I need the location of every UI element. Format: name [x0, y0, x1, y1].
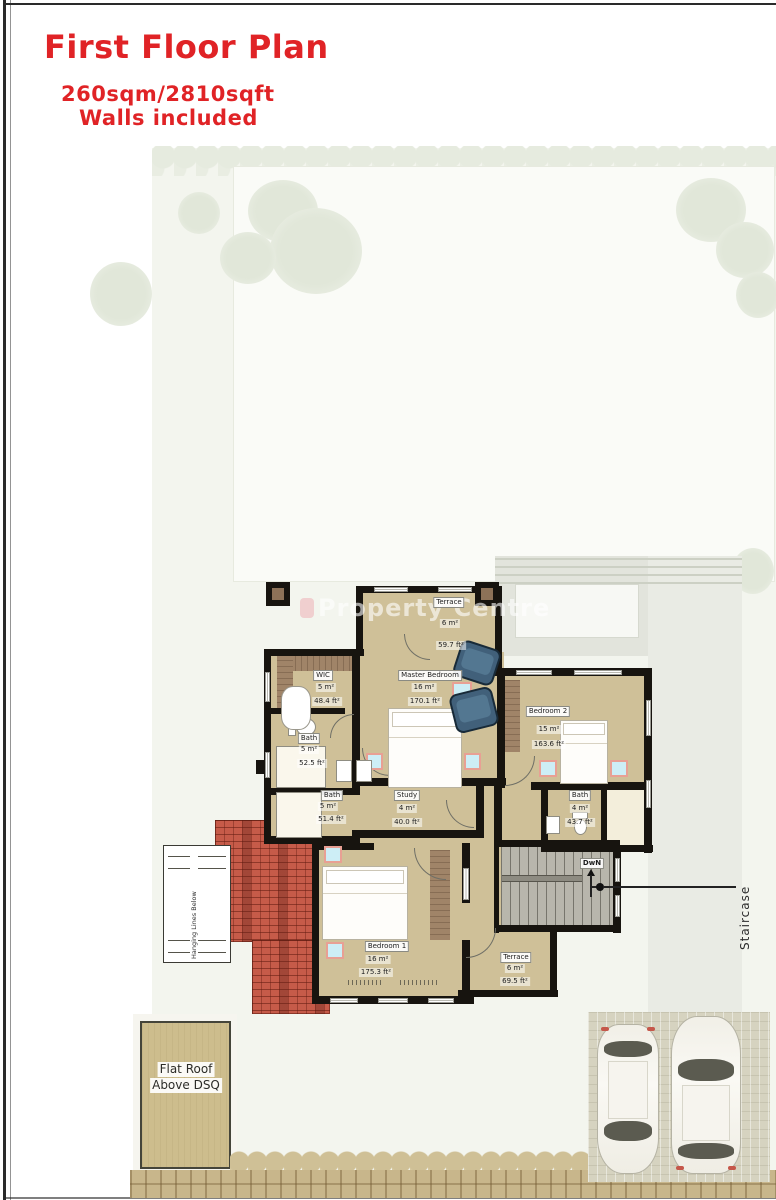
- car: [597, 1024, 659, 1174]
- bed-master: [388, 708, 462, 788]
- room-label: WIC: [313, 670, 333, 681]
- bed-bedroom2: [560, 720, 608, 784]
- sheet-border-top: [3, 3, 776, 5]
- room-area-sqm: 16 m²: [366, 955, 391, 964]
- nightstand: [326, 942, 344, 959]
- nightstand: [539, 760, 557, 777]
- bush: [220, 232, 276, 284]
- window: [330, 998, 358, 1003]
- sink: [336, 760, 352, 782]
- wall-segment: [550, 925, 557, 997]
- nightstand: [610, 760, 628, 777]
- sink: [546, 816, 560, 834]
- bed-bedroom1: [322, 866, 408, 940]
- flat-roof-dsq: [140, 1021, 231, 1169]
- room-label: Bath: [321, 790, 343, 801]
- bush: [716, 222, 774, 278]
- room-area-sqft: 69.5 ft²: [500, 977, 530, 986]
- bush: [178, 192, 220, 234]
- watermark-logo: [300, 598, 314, 618]
- sink: [356, 760, 372, 782]
- hanging-lines-label: Hanging Lines Below: [190, 850, 198, 960]
- vanity-wic: [281, 686, 311, 730]
- pier-column: [266, 582, 290, 606]
- window: [378, 998, 408, 1003]
- room-label: Terrace: [433, 597, 464, 608]
- wall-segment: [312, 843, 319, 1004]
- door-opening: [463, 868, 469, 900]
- side-path-gray: [648, 556, 742, 1034]
- room-area-sqm: 15 m²: [537, 725, 562, 734]
- room-area-sqm: 5 m²: [316, 683, 336, 692]
- room-area-sqft: 48.4 ft²: [312, 697, 342, 706]
- stair-rail: [502, 875, 582, 882]
- window: [574, 670, 622, 675]
- sheet-border-left-inner: [10, 0, 11, 1200]
- window: [646, 700, 651, 736]
- room-area-sqm: 4 m²: [570, 804, 590, 813]
- wall-segment: [494, 925, 620, 932]
- window: [615, 895, 620, 917]
- wall-segment: [601, 790, 607, 845]
- wall-segment: [312, 843, 374, 850]
- shower-shared-bath: [276, 792, 322, 838]
- window: [615, 858, 620, 882]
- room-label: Master Bedroom: [398, 670, 462, 681]
- room-area-sqm: 5 m²: [318, 802, 338, 811]
- room-area-sqft: 163.6 ft²: [532, 740, 566, 749]
- wall-segment: [497, 668, 505, 788]
- room-label: Bedroom 2: [526, 706, 570, 717]
- room-area-sqm: 6 m²: [505, 964, 525, 973]
- staircase-callout: Staircase: [738, 846, 752, 950]
- room-area-sqm: 16 m²: [412, 683, 437, 692]
- car: [671, 1016, 741, 1174]
- wall-segment: [476, 778, 484, 838]
- wall-segment: [264, 649, 364, 656]
- window: [646, 780, 651, 808]
- flat-roof-label-line1: Flat Roof: [158, 1062, 215, 1077]
- nightstand: [324, 846, 342, 863]
- wall-segment: [494, 840, 620, 847]
- path-stripes: [495, 558, 742, 584]
- wall-segment: [494, 845, 499, 933]
- room-area-sqm: 6 m²: [440, 619, 460, 628]
- sill-hatch: [348, 980, 384, 985]
- room-label: Terrace: [500, 952, 531, 963]
- wall-segment: [352, 830, 482, 838]
- bush: [90, 262, 152, 326]
- page-title: First Floor Plan: [44, 28, 329, 66]
- room-label: Bedroom 1: [365, 941, 409, 952]
- sheet-border-left: [3, 0, 6, 1200]
- floor-plan-sheet: { "page": { "title": "First Floor Plan",…: [0, 0, 776, 1200]
- wardrobe-bedroom2: [504, 680, 520, 752]
- page-subtitle-area: 260sqm/2810sqft: [61, 82, 275, 106]
- room-area-sqft: 40.0 ft²: [392, 818, 422, 827]
- nightstand: [464, 753, 481, 770]
- room-area-sqft: 51.4 ft²: [316, 815, 346, 824]
- window: [265, 752, 270, 778]
- page-note-walls: Walls included: [79, 106, 258, 130]
- window: [516, 670, 552, 675]
- room-area-sqm: 4 m²: [397, 804, 417, 813]
- window: [438, 587, 472, 592]
- room-label: Bath: [298, 733, 320, 744]
- wall-segment: [644, 668, 652, 853]
- sill-hatch: [400, 980, 438, 985]
- bush: [270, 208, 362, 294]
- room-area-sqft: 175.3 ft²: [359, 968, 393, 977]
- bush: [736, 272, 776, 318]
- room-area-sqm: 5 m²: [299, 745, 319, 754]
- window: [428, 998, 454, 1003]
- stair-direction-label: DwN: [580, 858, 604, 869]
- room-label: Bath: [569, 790, 591, 801]
- floor-closet-room: [604, 790, 644, 847]
- room-area-sqft: 52.5 ft²: [297, 759, 327, 768]
- window: [374, 587, 408, 592]
- window: [265, 672, 270, 702]
- room-label: Study: [394, 790, 420, 801]
- wall-segment: [494, 782, 502, 844]
- room-area-sqft: 59.7 ft²: [436, 641, 466, 650]
- callout-leader-line: [603, 886, 736, 888]
- flat-roof-label-line2: Above DSQ: [150, 1078, 222, 1093]
- room-area-sqft: 170.1 ft²: [408, 697, 442, 706]
- wall-segment: [458, 990, 558, 997]
- room-area-sqft: 43.7 ft²: [565, 818, 595, 827]
